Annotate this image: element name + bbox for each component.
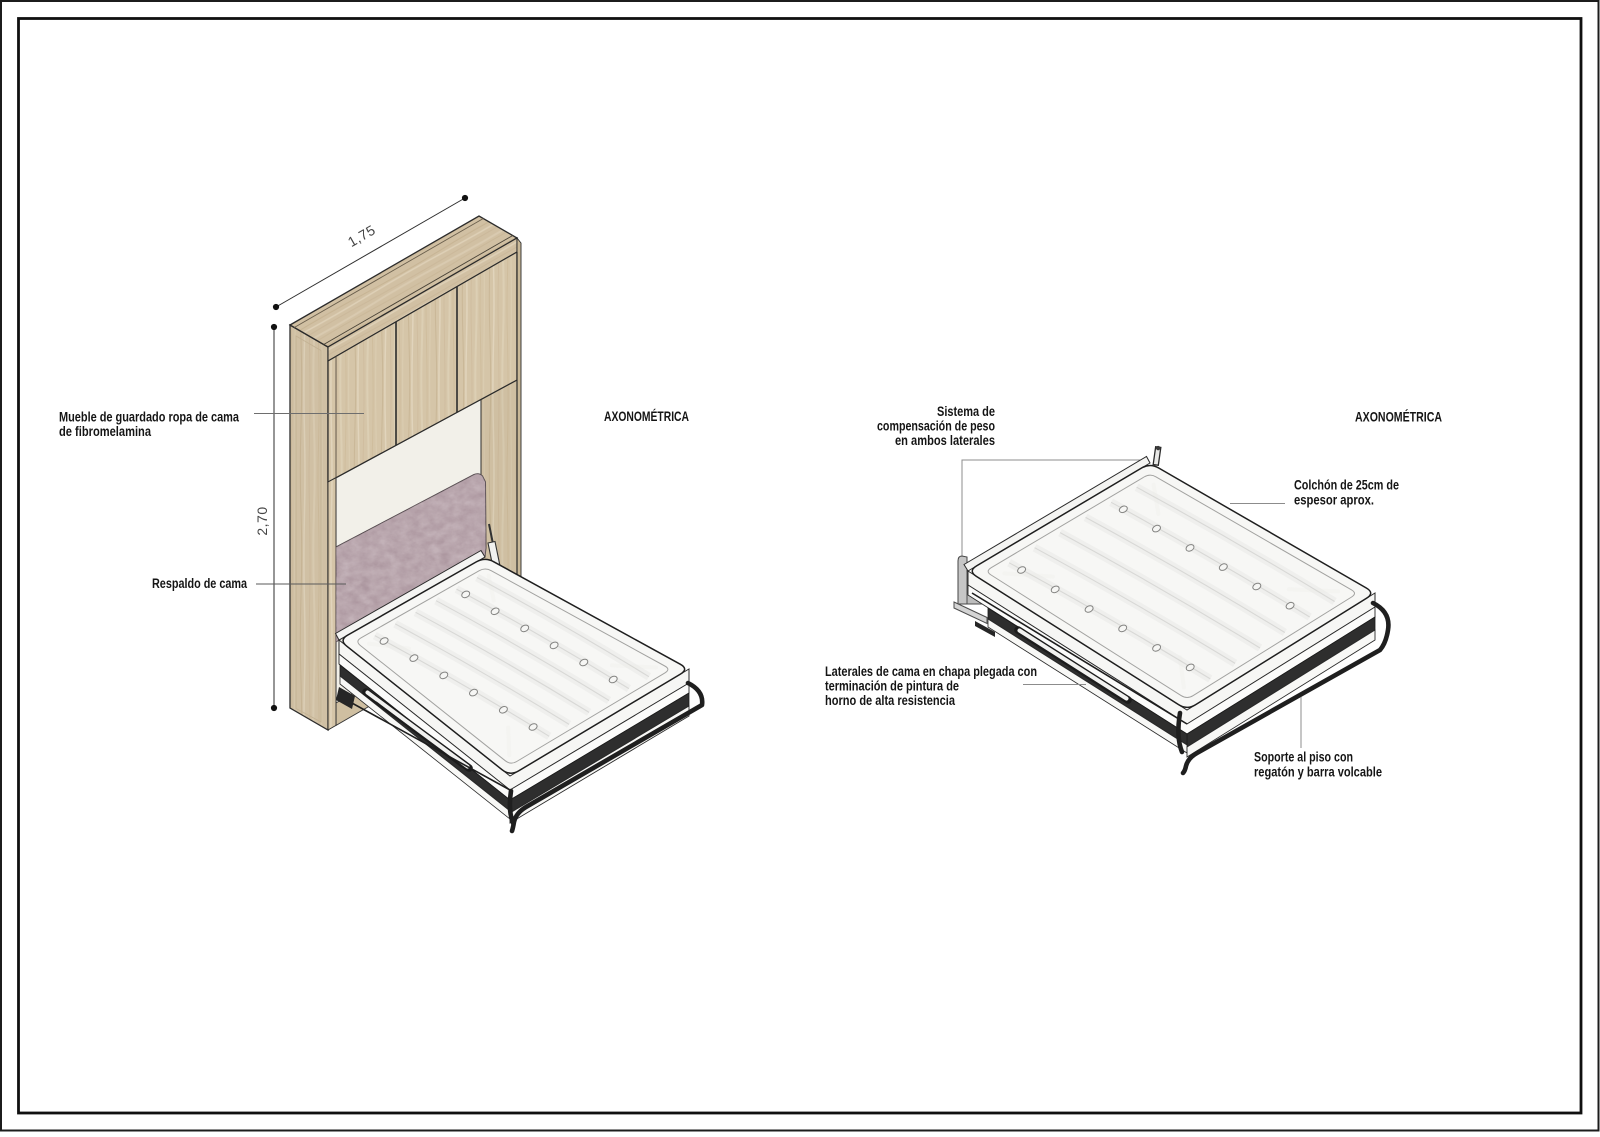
svg-text:de fibromelamina: de fibromelamina — [59, 424, 151, 439]
svg-text:Sistema de: Sistema de — [937, 404, 995, 419]
svg-text:Respaldo de cama: Respaldo de cama — [152, 576, 247, 591]
svg-text:Laterales de cama en chapa ple: Laterales de cama en chapa plegada con — [825, 664, 1037, 679]
svg-text:AXONOMÉTRICA: AXONOMÉTRICA — [1355, 410, 1442, 425]
svg-text:AXONOMÉTRICA: AXONOMÉTRICA — [604, 409, 689, 424]
svg-text:horno de alta resistencia: horno de alta resistencia — [825, 693, 955, 708]
svg-text:Mueble de guardado ropa de cam: Mueble de guardado ropa de cama — [59, 410, 239, 425]
svg-text:2,70: 2,70 — [254, 506, 270, 535]
svg-text:espesor aprox.: espesor aprox. — [1294, 493, 1374, 508]
svg-text:compensación de peso: compensación de peso — [877, 419, 995, 434]
svg-text:regatón y barra volcable: regatón y barra volcable — [1254, 765, 1382, 780]
svg-text:Colchón de 25cm de: Colchón de 25cm de — [1294, 478, 1399, 493]
svg-text:terminación de pintura de: terminación de pintura de — [825, 679, 959, 694]
svg-text:Soporte al piso con: Soporte al piso con — [1254, 750, 1353, 765]
svg-text:en ambos laterales: en ambos laterales — [895, 433, 995, 448]
